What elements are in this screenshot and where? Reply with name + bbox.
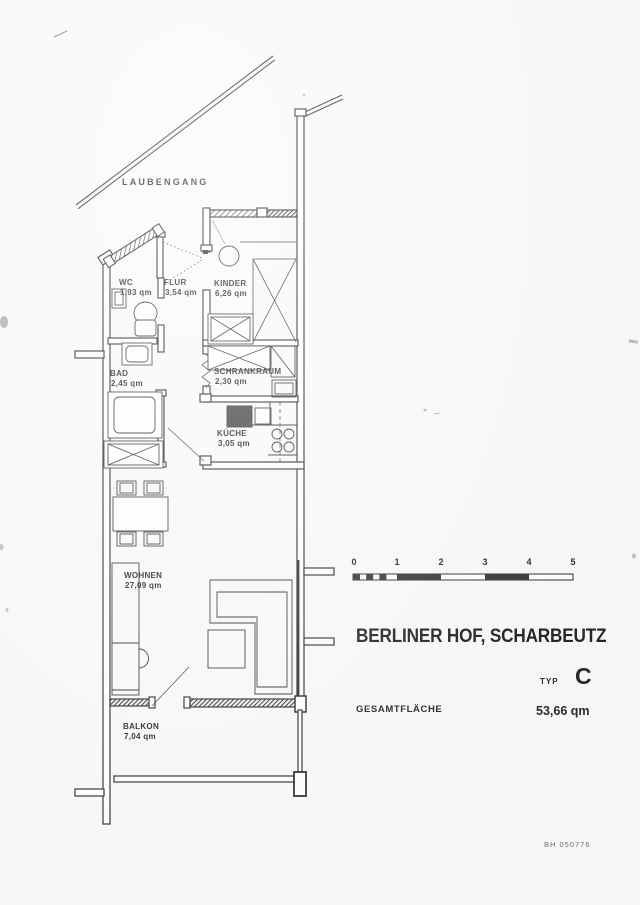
round-table-icon xyxy=(219,246,239,266)
coffee-table-icon xyxy=(208,630,245,668)
room-label-schrankraum: SCHRANKRAUM 2,30 qm xyxy=(214,367,281,386)
room-label-bad: BAD 2,45 qm xyxy=(110,369,143,388)
total-area-label: GESAMTFLÄCHE xyxy=(356,704,442,715)
sofa-icon xyxy=(210,580,292,694)
balcony-railing xyxy=(114,776,294,782)
bed-icon xyxy=(208,314,253,344)
balcony-side-edge xyxy=(298,710,302,772)
room-label-kueche: KÜCHE 3,05 qm xyxy=(217,429,250,448)
bathtub-icon xyxy=(108,392,162,438)
room-label-wohnen: WOHNEN 27,09 qm xyxy=(124,571,162,590)
laubengang-edge-stub xyxy=(305,95,343,116)
room-label-balkon: BALKON 7,04 qm xyxy=(123,722,159,741)
wall-stub xyxy=(304,568,334,575)
drawing-number: BH 050776 xyxy=(544,840,591,849)
scan-artifacts xyxy=(0,31,638,612)
washing-machine-icon xyxy=(104,441,163,468)
type-label: TYP xyxy=(540,677,559,686)
laubengang-label: LAUBENGANG xyxy=(122,177,209,187)
project-title: BERLINER HOF, SCHARBEUTZ xyxy=(356,625,606,648)
scanned-floor-plan-page: LAUBENGANG WC 1,93 qm FLUR 3,54 qm KINDE… xyxy=(0,0,640,905)
scale-bar-graphic xyxy=(353,574,573,580)
entry-door xyxy=(103,224,164,268)
dining-table-icon xyxy=(113,497,168,531)
type-value: C xyxy=(575,663,592,690)
scale-tick: 3 xyxy=(482,557,487,567)
right-wall-top-cap xyxy=(295,109,306,116)
bathroom-sink-icon xyxy=(122,343,152,365)
scale-tick: 0 xyxy=(351,557,356,567)
floor-plan-drawing xyxy=(0,0,640,905)
scale-tick: 5 xyxy=(570,557,575,567)
kitchen-sink-icon xyxy=(227,406,271,427)
scale-tick: 2 xyxy=(438,557,443,567)
total-area-value: 53,66 qm xyxy=(536,704,590,718)
wall-stub xyxy=(75,789,104,796)
wall-stub xyxy=(75,351,104,358)
room-label-kinder: KINDER 6,26 qm xyxy=(214,279,247,298)
wall-stub xyxy=(304,638,334,645)
room-label-flur: FLUR 3,54 qm xyxy=(164,278,197,297)
room-label-wc: WC 1,93 qm xyxy=(119,278,152,297)
scale-tick: 4 xyxy=(526,557,531,567)
balcony-post xyxy=(294,772,306,796)
toilet-icon xyxy=(134,302,157,336)
scale-tick: 1 xyxy=(394,557,399,567)
